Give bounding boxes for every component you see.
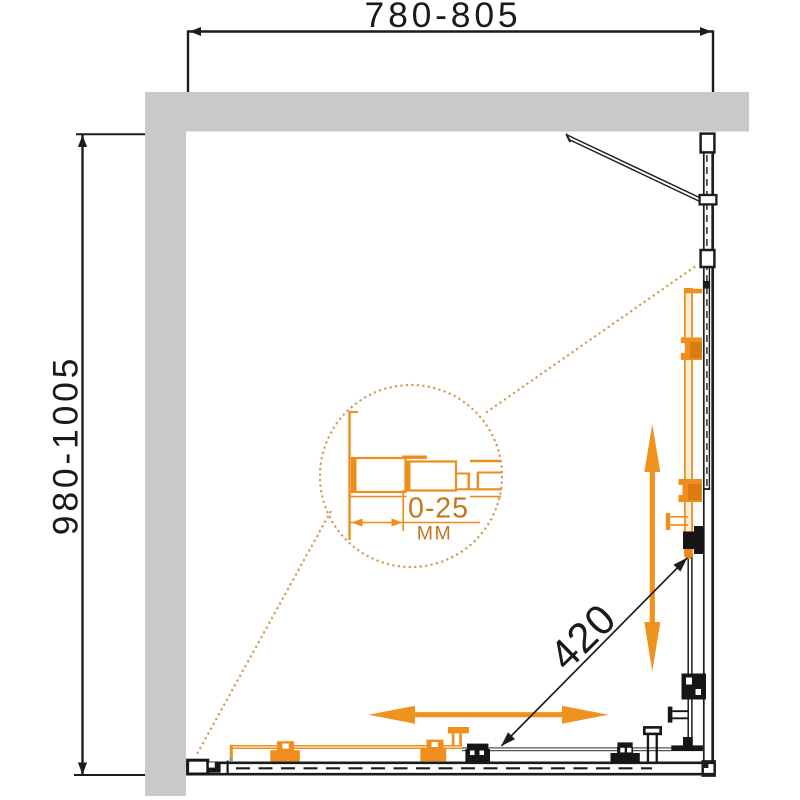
svg-text:MM: MM [417,523,453,545]
svg-text:980-1005: 980-1005 [46,355,86,535]
svg-text:780-805: 780-805 [365,0,522,35]
svg-text:0-25: 0-25 [408,493,469,525]
